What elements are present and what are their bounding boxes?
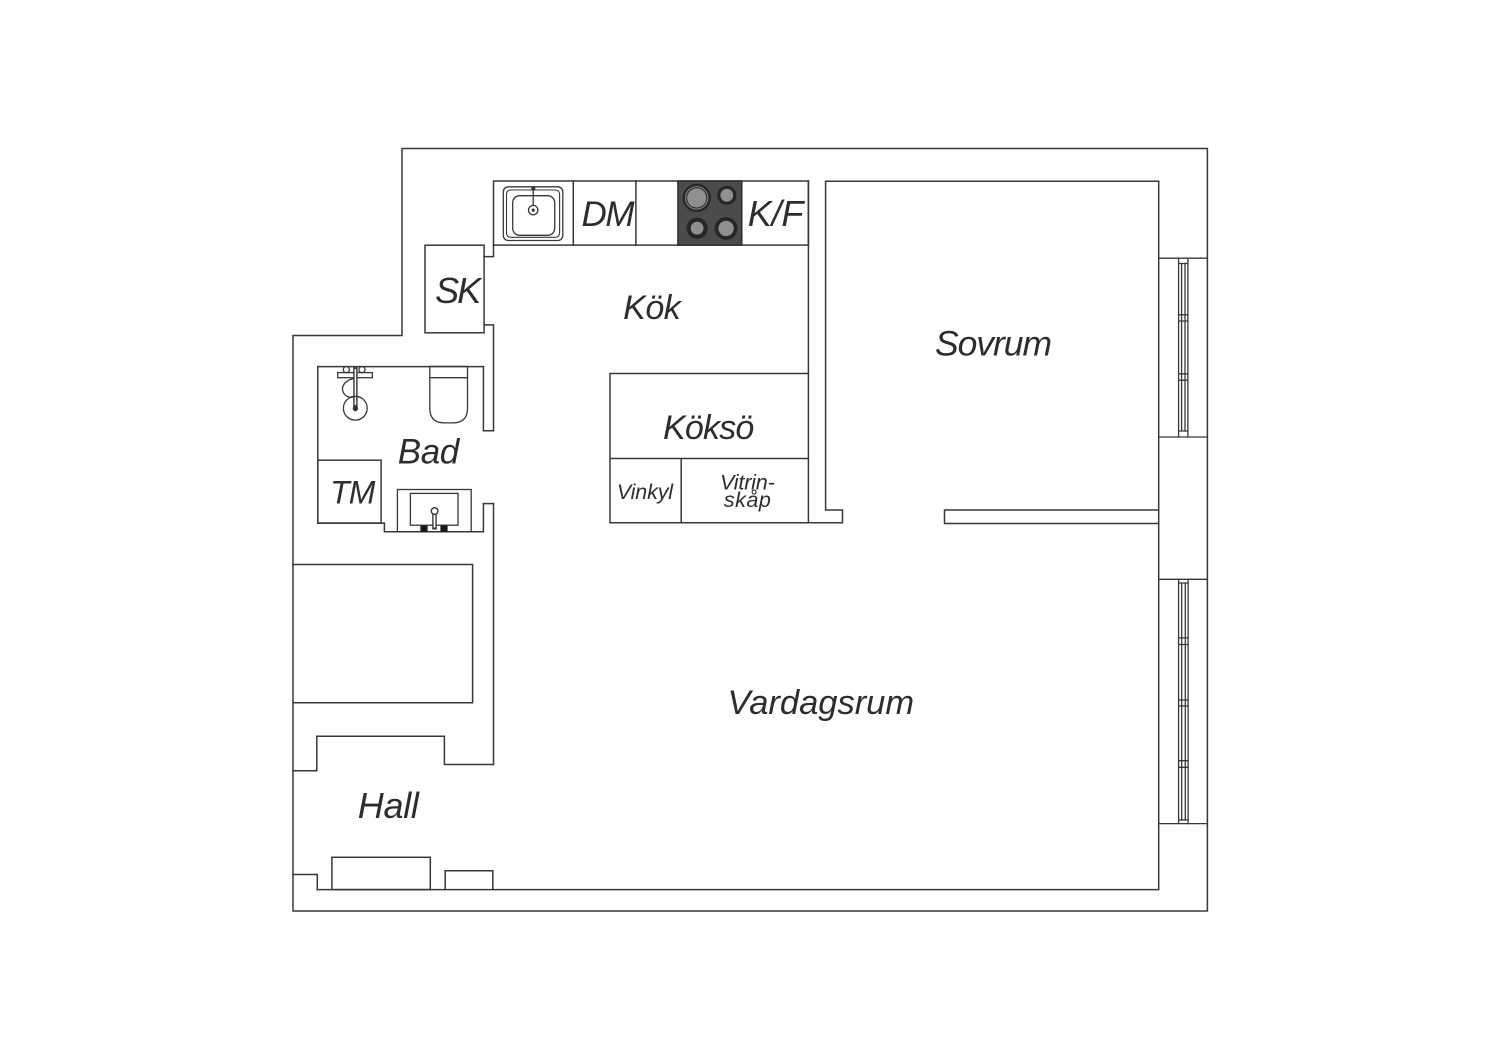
svg-text:DM: DM <box>581 195 635 234</box>
svg-text:Sovrum: Sovrum <box>935 324 1051 364</box>
svg-text:TM: TM <box>330 475 376 511</box>
svg-text:Köksö: Köksö <box>663 409 754 447</box>
svg-text:K/F: K/F <box>748 193 806 234</box>
svg-text:Vinkyl: Vinkyl <box>617 480 674 504</box>
svg-text:skåp: skåp <box>724 487 771 512</box>
svg-text:Kök: Kök <box>623 289 683 327</box>
svg-text:Vardagsrum: Vardagsrum <box>727 684 914 722</box>
svg-text:Bad: Bad <box>398 432 461 471</box>
svg-text:Hall: Hall <box>358 785 420 826</box>
svg-text:SK: SK <box>435 270 483 311</box>
